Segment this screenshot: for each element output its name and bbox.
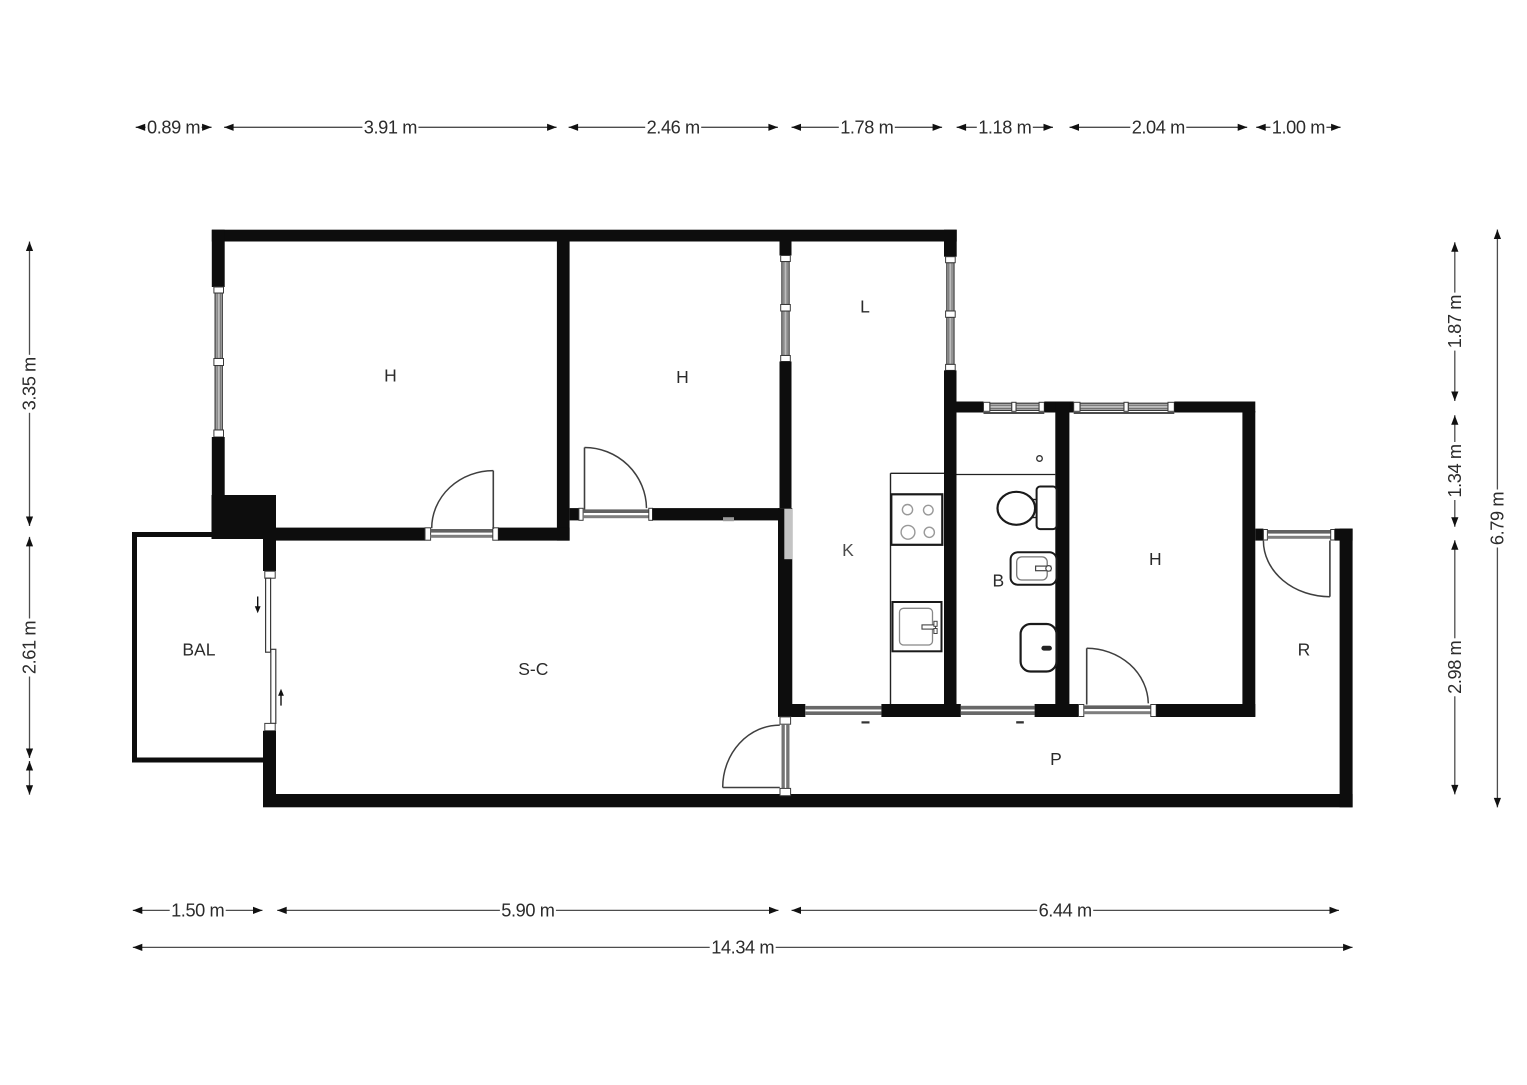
svg-text:5.90 m: 5.90 m — [501, 901, 554, 921]
svg-text:2.04 m: 2.04 m — [1132, 118, 1185, 138]
svg-text:1.87 m: 1.87 m — [1445, 295, 1465, 348]
svg-text:H: H — [1149, 549, 1162, 569]
svg-text:S-C: S-C — [518, 659, 548, 679]
svg-text:1.78 m: 1.78 m — [840, 118, 893, 138]
svg-text:1.18 m: 1.18 m — [978, 118, 1031, 138]
svg-text:0.89 m: 0.89 m — [147, 118, 200, 138]
svg-text:6.79 m: 6.79 m — [1488, 492, 1508, 545]
svg-text:3.35 m: 3.35 m — [20, 357, 40, 410]
svg-text:P: P — [1050, 749, 1062, 769]
svg-text:H: H — [384, 366, 397, 386]
svg-text:14.34 m: 14.34 m — [711, 938, 774, 958]
svg-text:1.00 m: 1.00 m — [1272, 118, 1325, 138]
svg-text:6.44 m: 6.44 m — [1039, 901, 1092, 921]
svg-text:2.46 m: 2.46 m — [647, 118, 700, 138]
svg-text:B: B — [992, 570, 1004, 590]
svg-text:K: K — [842, 540, 854, 560]
svg-text:3.91 m: 3.91 m — [364, 118, 417, 138]
svg-text:2.98 m: 2.98 m — [1445, 641, 1465, 694]
svg-text:2.61 m: 2.61 m — [20, 621, 40, 674]
svg-text:BAL: BAL — [182, 640, 215, 660]
svg-text:1.34 m: 1.34 m — [1445, 444, 1465, 497]
svg-text:H: H — [676, 367, 689, 387]
svg-text:L: L — [860, 296, 870, 316]
svg-text:1.50 m: 1.50 m — [171, 901, 224, 921]
svg-text:R: R — [1298, 640, 1311, 660]
